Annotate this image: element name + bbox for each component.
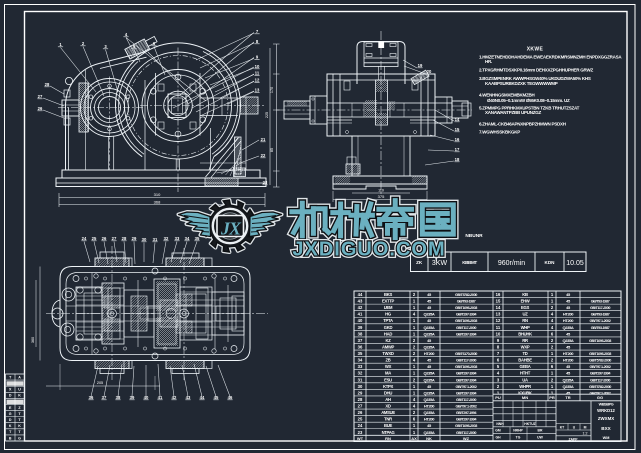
svg-text:DHU: DHU bbox=[384, 390, 392, 395]
svg-text:Q235A: Q235A bbox=[424, 377, 435, 382]
svg-text:XANAWANTPZBB UPUNZGZ: XANAWANTPZBB UPUNZGZ bbox=[485, 110, 541, 115]
svg-text:24: 24 bbox=[82, 236, 87, 241]
svg-text:JXDIGUO.COM: JXDIGUO.COM bbox=[292, 239, 445, 261]
svg-text:Q235A: Q235A bbox=[563, 384, 574, 389]
svg-text:GEBA: GEBA bbox=[520, 364, 531, 369]
svg-text:44: 44 bbox=[200, 395, 205, 400]
svg-text:HAD: HAD bbox=[384, 331, 392, 336]
svg-text:26: 26 bbox=[102, 236, 107, 241]
svg-text:30: 30 bbox=[142, 237, 147, 242]
svg-text:GB/T97.1-2002: GB/T97.1-2002 bbox=[590, 365, 611, 369]
svg-text:39: 39 bbox=[358, 325, 363, 330]
svg-text:41: 41 bbox=[158, 395, 163, 400]
svg-text:U: U bbox=[18, 388, 21, 392]
svg-text:GB/T5782-2000: GB/T5782-2000 bbox=[589, 385, 611, 389]
svg-text:GB/T97.1-2002: GB/T97.1-2002 bbox=[456, 385, 477, 389]
svg-text:GB/T297-1994: GB/T297-1994 bbox=[590, 372, 612, 376]
svg-text:WRKD12: WRKD12 bbox=[597, 408, 615, 413]
svg-text:BHUHK: BHUHK bbox=[518, 331, 532, 336]
svg-text:UW: UW bbox=[537, 436, 543, 440]
svg-text:AMWP: AMWP bbox=[382, 344, 395, 349]
svg-text:22: 22 bbox=[261, 153, 266, 158]
svg-text:TNR: TNR bbox=[384, 417, 392, 422]
svg-text:10: 10 bbox=[496, 331, 501, 336]
svg-text:20: 20 bbox=[427, 69, 432, 74]
svg-text:RR: RR bbox=[522, 338, 528, 343]
svg-text:GB/T93-1987: GB/T93-1987 bbox=[457, 300, 476, 304]
svg-text:23: 23 bbox=[358, 430, 363, 435]
svg-text:17: 17 bbox=[455, 147, 460, 152]
svg-text:21: 21 bbox=[261, 137, 266, 142]
svg-text:WM: WM bbox=[603, 436, 610, 440]
svg-text:EGS: EGS bbox=[521, 305, 529, 310]
svg-text:AX: AX bbox=[411, 436, 417, 441]
svg-text:1:2: 1:2 bbox=[583, 432, 588, 436]
svg-text:GB/T1096-2003: GB/T1096-2003 bbox=[589, 339, 611, 343]
svg-text:16: 16 bbox=[455, 137, 460, 142]
svg-text:HTHT: HTHT bbox=[520, 371, 531, 376]
svg-text:HT200: HT200 bbox=[563, 358, 574, 363]
svg-text:TWXD: TWXD bbox=[382, 351, 393, 356]
svg-text:3KW: 3KW bbox=[432, 260, 448, 267]
svg-text:HR.: HR. bbox=[485, 59, 492, 64]
svg-text:Q235A: Q235A bbox=[563, 338, 574, 343]
svg-text:Q235A: Q235A bbox=[424, 325, 435, 330]
svg-text:UZ: UZ bbox=[523, 312, 529, 317]
svg-text:GB/T97.1-2002: GB/T97.1-2002 bbox=[456, 405, 477, 409]
svg-text:13: 13 bbox=[255, 88, 260, 93]
svg-text:GB/T297-1994: GB/T297-1994 bbox=[456, 372, 478, 376]
svg-text:7.WGWHSSKBKGKP: 7.WGWHSSKBKGKP bbox=[479, 130, 520, 135]
svg-text:33: 33 bbox=[175, 236, 180, 241]
svg-text:Q235A: Q235A bbox=[424, 331, 435, 336]
svg-text:GB/T117-2000: GB/T117-2000 bbox=[456, 326, 476, 330]
svg-text:35: 35 bbox=[195, 236, 200, 241]
svg-text:BAHBE: BAHBE bbox=[518, 358, 532, 363]
svg-text:6.ZHAML-CKB46APNXNPBPZHMWN PSD: 6.ZHAML-CKB46APNXNPBPZHMWN PSDXH bbox=[479, 121, 566, 126]
svg-text:Q235A: Q235A bbox=[563, 377, 574, 382]
svg-text:K: K bbox=[9, 424, 12, 428]
svg-text:30: 30 bbox=[358, 384, 363, 389]
svg-text:HG: HG bbox=[385, 312, 391, 317]
svg-text:GB/T1096-2003: GB/T1096-2003 bbox=[455, 424, 477, 428]
svg-text:GB/T1096-2003: GB/T1096-2003 bbox=[455, 306, 477, 310]
svg-text:G: G bbox=[18, 436, 21, 440]
svg-text:32: 32 bbox=[164, 236, 169, 241]
svg-text:24: 24 bbox=[358, 423, 363, 428]
svg-text:MA: MA bbox=[385, 371, 391, 376]
svg-text:HT200: HT200 bbox=[424, 404, 435, 409]
svg-text:39: 39 bbox=[130, 395, 135, 400]
svg-text:85: 85 bbox=[270, 148, 274, 152]
svg-text:GB/T117-2000: GB/T117-2000 bbox=[456, 359, 476, 363]
svg-text:27: 27 bbox=[112, 236, 117, 241]
svg-text:ZAPP: ZAPP bbox=[568, 437, 578, 441]
svg-text:31: 31 bbox=[153, 237, 158, 242]
svg-text:KAABPSURBKDZXK TEGWWWWMP: KAABPSURBKDZXK TEGWWWWMP bbox=[485, 81, 558, 86]
svg-text:WZ: WZ bbox=[463, 436, 470, 441]
svg-text:HT200: HT200 bbox=[563, 318, 574, 323]
svg-text:GB/T1096-2003: GB/T1096-2003 bbox=[455, 365, 477, 369]
svg-text:14: 14 bbox=[455, 117, 460, 122]
svg-text:MN: MN bbox=[522, 395, 528, 400]
svg-text:GM: GM bbox=[495, 429, 501, 433]
svg-text:Q235A: Q235A bbox=[563, 325, 574, 330]
svg-text:Q235A: Q235A bbox=[424, 397, 435, 402]
svg-text:AMSUE: AMSUE bbox=[381, 410, 395, 415]
svg-text:HT200: HT200 bbox=[424, 351, 435, 356]
svg-text:A: A bbox=[18, 375, 21, 379]
svg-text:KZ: KZ bbox=[386, 338, 392, 343]
svg-text:23: 23 bbox=[263, 180, 268, 185]
svg-text:40: 40 bbox=[144, 395, 149, 400]
svg-text:11: 11 bbox=[255, 71, 260, 76]
svg-text:ESU: ESU bbox=[384, 377, 392, 382]
svg-text:WHP: WHP bbox=[521, 325, 530, 330]
svg-text:TR: TR bbox=[565, 395, 570, 400]
svg-text:Q235A: Q235A bbox=[424, 312, 435, 317]
svg-text:ZWXMX: ZWXMX bbox=[598, 416, 614, 421]
svg-text:28: 28 bbox=[358, 397, 363, 402]
svg-text:UA: UA bbox=[522, 377, 528, 382]
svg-text:12: 12 bbox=[496, 318, 501, 323]
svg-text:GB/T5782-2000: GB/T5782-2000 bbox=[455, 293, 477, 297]
svg-text:K: K bbox=[18, 394, 21, 398]
svg-text:46: 46 bbox=[228, 395, 233, 400]
svg-text:15: 15 bbox=[496, 299, 501, 304]
svg-text:KB: KB bbox=[522, 292, 528, 297]
svg-text:NBUNR: NBUNR bbox=[465, 233, 483, 239]
svg-text:HT200: HT200 bbox=[563, 351, 574, 356]
svg-text:10.05: 10.05 bbox=[566, 260, 584, 267]
svg-text:GB/T117-2000: GB/T117-2000 bbox=[590, 378, 610, 382]
svg-text:10: 10 bbox=[255, 64, 260, 69]
svg-text:368: 368 bbox=[154, 200, 161, 205]
svg-text:HT200: HT200 bbox=[563, 312, 574, 317]
svg-text:15: 15 bbox=[455, 127, 460, 132]
svg-text:PR: PR bbox=[549, 395, 555, 400]
svg-text:KDN: KDN bbox=[545, 260, 556, 265]
svg-text:JX: JX bbox=[220, 219, 242, 239]
svg-text:WXP: WXP bbox=[521, 344, 530, 349]
svg-text:1.HMZETNEHDDHAHDEMA EWEAEKRDKM: 1.HMZETNEHDDHAHDEMA EWEAEKRDKMRSMNZMH EN… bbox=[479, 55, 622, 60]
svg-text:45: 45 bbox=[214, 395, 219, 400]
svg-text:34: 34 bbox=[185, 236, 190, 241]
svg-text:HKTUZ: HKTUZ bbox=[524, 422, 536, 426]
svg-text:31: 31 bbox=[358, 377, 363, 382]
svg-text:27: 27 bbox=[358, 404, 363, 409]
svg-text:Q235A: Q235A bbox=[424, 430, 435, 435]
svg-text:14: 14 bbox=[496, 305, 501, 310]
svg-text:41: 41 bbox=[358, 312, 363, 317]
svg-text:Q235A: Q235A bbox=[424, 371, 435, 376]
svg-text:35: 35 bbox=[358, 351, 363, 356]
svg-text:GB/T1096-2003: GB/T1096-2003 bbox=[455, 319, 477, 323]
svg-text:M: M bbox=[584, 425, 587, 429]
svg-text:EHW: EHW bbox=[521, 299, 530, 304]
svg-text:GKD: GKD bbox=[384, 325, 393, 330]
svg-text:BKS: BKS bbox=[384, 292, 392, 297]
svg-text:34: 34 bbox=[358, 358, 363, 363]
svg-text:GB/T297-1994: GB/T297-1994 bbox=[456, 391, 478, 395]
svg-text:42: 42 bbox=[358, 305, 363, 310]
svg-text:205: 205 bbox=[97, 381, 103, 385]
svg-text:Q235A: Q235A bbox=[424, 344, 435, 349]
svg-text:TD: TD bbox=[523, 351, 528, 356]
svg-text:13: 13 bbox=[496, 312, 501, 317]
svg-text:29: 29 bbox=[358, 390, 363, 395]
svg-text:38: 38 bbox=[358, 331, 363, 336]
svg-text:GB/T93-1987: GB/T93-1987 bbox=[591, 326, 610, 330]
svg-text:PU: PU bbox=[495, 395, 501, 400]
svg-text:HT200: HT200 bbox=[424, 417, 435, 422]
svg-text:GB/T93-1987: GB/T93-1987 bbox=[591, 313, 610, 317]
svg-text:NTPAG: NTPAG bbox=[382, 430, 395, 435]
svg-text:43: 43 bbox=[186, 395, 191, 400]
svg-text:110: 110 bbox=[378, 189, 384, 193]
svg-text:18: 18 bbox=[455, 157, 460, 162]
svg-text:KBBMT: KBBMT bbox=[462, 260, 477, 265]
svg-text:ZB: ZB bbox=[386, 358, 391, 363]
svg-text:16: 16 bbox=[496, 292, 501, 297]
svg-text:37: 37 bbox=[358, 338, 363, 343]
svg-text:GB/T117-2000: GB/T117-2000 bbox=[456, 398, 476, 402]
svg-text:26: 26 bbox=[38, 106, 43, 111]
svg-text:12: 12 bbox=[255, 78, 260, 83]
svg-text:Ø40N0.05~0.1mmW Ø55K0.08~0.15m: Ø40N0.05~0.1mmW Ø55K0.08~0.15mm. UZ bbox=[487, 98, 570, 103]
svg-text:RN: RN bbox=[385, 436, 391, 441]
svg-text:GB/T1096-2003: GB/T1096-2003 bbox=[589, 352, 611, 356]
svg-text:GB/T117-2000: GB/T117-2000 bbox=[590, 306, 610, 310]
svg-text:GB/T117-2000: GB/T117-2000 bbox=[456, 431, 476, 435]
svg-text:32: 32 bbox=[358, 371, 363, 376]
svg-text:19: 19 bbox=[418, 63, 423, 68]
svg-text:WX: WX bbox=[385, 364, 392, 369]
svg-text:WBSBPG: WBSBPG bbox=[599, 403, 614, 407]
svg-text:D: D bbox=[9, 418, 12, 422]
svg-text:4.WENHNGSMXEMBKMZBH: 4.WENHNGSMXEMBKMZBH bbox=[479, 92, 535, 97]
svg-text:WT: WT bbox=[357, 436, 364, 441]
svg-text:NNH: NNH bbox=[496, 422, 504, 426]
svg-text:K: K bbox=[18, 424, 21, 428]
svg-text:BXX: BXX bbox=[601, 426, 611, 431]
svg-text:BUE: BUE bbox=[384, 423, 392, 428]
svg-text:KTPX: KTPX bbox=[383, 384, 393, 389]
svg-text:GB/T5782-2000: GB/T5782-2000 bbox=[589, 359, 611, 363]
svg-text:26: 26 bbox=[358, 410, 363, 415]
svg-text:EXTTP: EXTTP bbox=[382, 299, 395, 304]
svg-text:GH: GH bbox=[495, 436, 501, 440]
svg-text:BR: BR bbox=[538, 429, 543, 433]
svg-text:GB/T93-1987: GB/T93-1987 bbox=[591, 300, 610, 304]
svg-text:25: 25 bbox=[358, 417, 363, 422]
svg-text:NK: NK bbox=[426, 436, 432, 441]
svg-text:44: 44 bbox=[358, 292, 363, 297]
svg-text:TPTA: TPTA bbox=[383, 318, 393, 323]
svg-text:28: 28 bbox=[45, 82, 50, 87]
svg-text:XD: XD bbox=[385, 404, 390, 409]
svg-text:TG: TG bbox=[516, 436, 521, 440]
svg-text:UEM: UEM bbox=[384, 305, 393, 310]
svg-text:ZK: ZK bbox=[416, 260, 423, 265]
svg-text:960r/min: 960r/min bbox=[498, 260, 525, 267]
svg-text:B: B bbox=[9, 436, 12, 440]
svg-text:GB/T6170-2000: GB/T6170-2000 bbox=[455, 352, 477, 356]
svg-text:375: 375 bbox=[378, 194, 385, 199]
svg-text:11: 11 bbox=[496, 325, 501, 330]
svg-text:25: 25 bbox=[92, 236, 97, 241]
svg-text:310: 310 bbox=[154, 192, 161, 197]
svg-text:XKWE: XKWE bbox=[527, 47, 544, 53]
svg-text:NRHP: NRHP bbox=[513, 429, 523, 433]
svg-text:GB/T297-1994: GB/T297-1994 bbox=[456, 313, 478, 317]
svg-text:225: 225 bbox=[265, 112, 269, 118]
svg-text:Q235A: Q235A bbox=[424, 410, 435, 415]
svg-text:GB/T297-1994: GB/T297-1994 bbox=[456, 411, 478, 415]
svg-text:40: 40 bbox=[358, 318, 363, 323]
svg-text:170: 170 bbox=[270, 87, 274, 93]
svg-text:AH: AH bbox=[385, 397, 391, 402]
svg-text:G: G bbox=[9, 412, 12, 416]
svg-text:360: 360 bbox=[31, 337, 35, 343]
svg-text:33: 33 bbox=[358, 364, 363, 369]
svg-text:27: 27 bbox=[38, 94, 43, 99]
svg-text:2.TPXGRHMTDSXKP0.16mm DEHXXZPG: 2.TPXGRHMTDSXKP0.16mm DEHXXZPGHHUPHER GR… bbox=[479, 68, 593, 73]
svg-text:GB/T97.1-2002: GB/T97.1-2002 bbox=[590, 319, 611, 323]
svg-text:RN: RN bbox=[522, 318, 528, 323]
svg-text:GB/T297-1994: GB/T297-1994 bbox=[456, 418, 478, 422]
svg-text:GB/T297-1994: GB/T297-1994 bbox=[456, 332, 478, 336]
svg-text:Q235A: Q235A bbox=[424, 390, 435, 395]
svg-text:GB/T297-1994: GB/T297-1994 bbox=[456, 378, 478, 382]
svg-text:WHPR: WHPR bbox=[519, 384, 531, 389]
svg-text:28: 28 bbox=[122, 236, 127, 241]
svg-text:D: D bbox=[9, 394, 12, 398]
svg-text:43: 43 bbox=[358, 299, 363, 304]
svg-text:29: 29 bbox=[132, 236, 137, 241]
svg-text:42: 42 bbox=[172, 395, 177, 400]
svg-text:36: 36 bbox=[358, 344, 363, 349]
svg-text:GG: GG bbox=[597, 395, 603, 400]
